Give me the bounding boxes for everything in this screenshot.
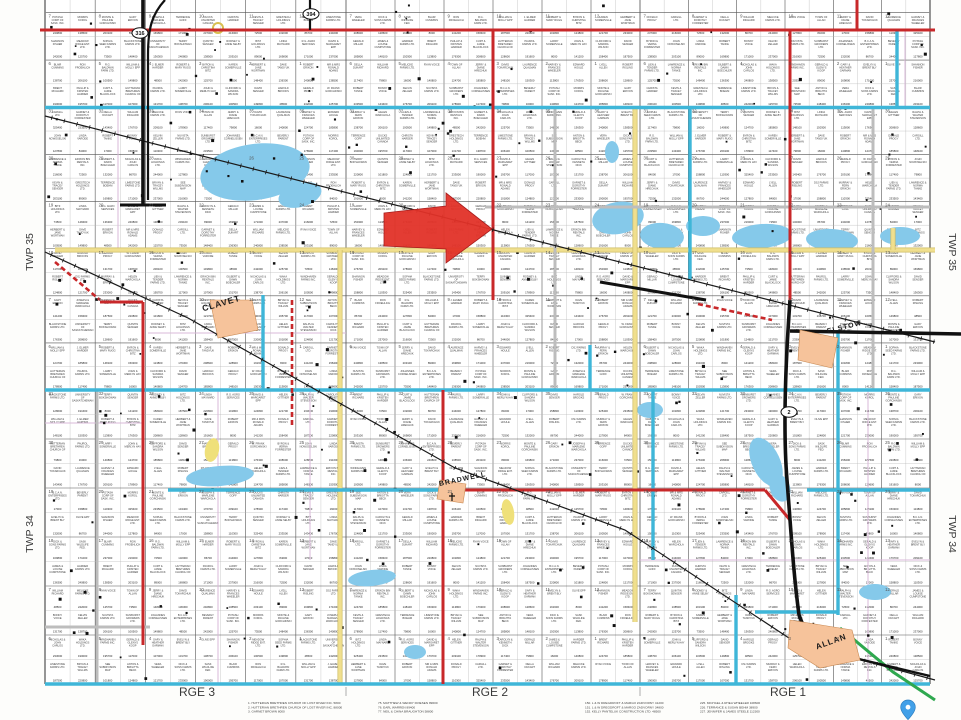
plat-map-canvas: POTASHCORP OFSASK. INC.240800SHANNONFISH… xyxy=(0,0,961,720)
highway-shield-2: 2 xyxy=(781,407,797,417)
highway-shield-394: 394 xyxy=(303,9,319,19)
plat-map-image: POTASHCORP OFSASK. INC.240800SHANNONFISH… xyxy=(0,0,961,720)
highway-shield-316: 316 xyxy=(132,28,148,38)
